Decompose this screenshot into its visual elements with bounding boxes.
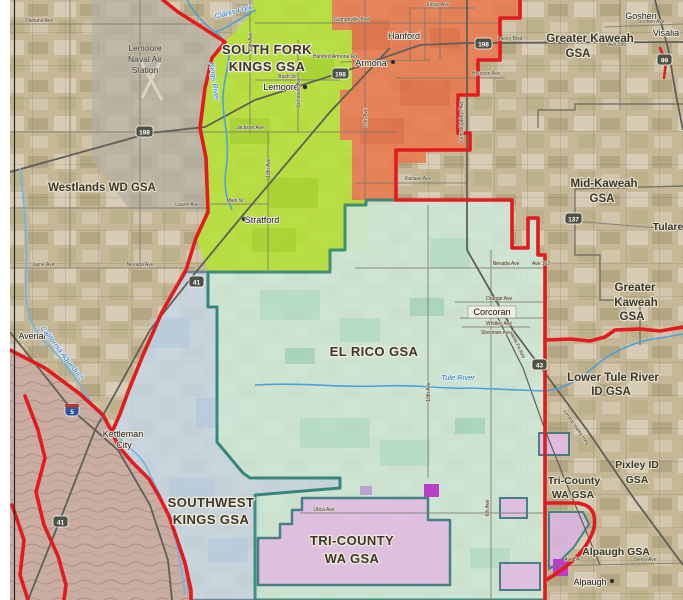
label-town-kettleman-2: City xyxy=(116,440,132,450)
label-town-alpaugh: Alpaugh xyxy=(573,577,606,587)
label-road-whitley: Whitley Ave xyxy=(486,321,512,327)
label-road-goshen-ave: Goshen Ave xyxy=(637,19,664,25)
shield-198-mid: 198 xyxy=(332,68,349,79)
label-greater-kaweah-right-2: Kaweah xyxy=(614,297,657,309)
label-naval-2: Naval Air xyxy=(128,54,162,64)
armona-dot xyxy=(391,60,395,64)
label-pixley-2: GSA xyxy=(626,474,649,486)
label-road-utica: Utica Ave xyxy=(313,507,334,513)
label-south-fork-kings-1: SOUTH FORK xyxy=(222,42,312,57)
gsa-boundary-map[interactable]: 198 198 198 41 41 5 43 137 99 Lemoore Na… xyxy=(0,0,683,600)
label-el-rico: EL RICO GSA xyxy=(330,344,419,359)
label-road-bush: Bush St xyxy=(278,74,296,80)
label-road-cvh-north: Central Valley Hwy xyxy=(459,101,465,143)
label-tule-river: Tule River xyxy=(441,373,475,382)
label-town-corcoran: Corcoran xyxy=(473,307,510,317)
label-greater-kaweah-right-1: Greater xyxy=(615,282,656,294)
label-southwest-kings-1: SOUTHWEST xyxy=(168,495,255,510)
shield-137: 137 xyxy=(565,213,582,224)
label-road-6th: 6th Ave xyxy=(485,499,491,516)
label-road-grangeville: Grangeville Blvd xyxy=(334,17,371,23)
svg-text:41: 41 xyxy=(57,520,65,527)
label-greater-kaweah-top-2: GSA xyxy=(566,48,591,60)
shield-43: 43 xyxy=(532,359,547,370)
label-lower-tule-1: Lower Tule River xyxy=(567,372,659,384)
shield-198-east: 198 xyxy=(475,38,492,49)
label-road-main-st: Main St xyxy=(227,198,245,204)
shield-41-north: 41 xyxy=(189,276,204,287)
label-tri-county-small-1: Tri-County xyxy=(548,475,601,487)
shield-99: 99 xyxy=(657,54,672,65)
shield-interstate-5: 5 xyxy=(65,404,79,416)
label-town-stratford: Stratford xyxy=(245,215,280,225)
label-south-fork-kings-2: KINGS GSA xyxy=(229,59,306,74)
label-road-19th: 19th Ave xyxy=(248,32,254,52)
label-road-sierra: Sierra Ave xyxy=(634,557,657,563)
svg-text:137: 137 xyxy=(568,217,579,224)
label-westlands: Westlands WD GSA xyxy=(48,182,156,194)
lemoore-naval-air-station-area xyxy=(92,0,220,210)
label-town-armona: Armona xyxy=(355,58,387,68)
lemoore-dot xyxy=(303,85,307,89)
svg-text:198: 198 xyxy=(139,130,150,137)
label-pixley-1: Pixley ID xyxy=(615,459,659,471)
label-road-sherman: Sherman Ave xyxy=(481,330,511,336)
label-tulare: Tulare xyxy=(653,221,683,233)
svg-text:99: 99 xyxy=(661,58,669,65)
label-greater-kaweah-right-3: GSA xyxy=(620,311,645,323)
map-canvas[interactable]: 198 198 198 41 41 5 43 137 99 Lemoore Na… xyxy=(0,0,683,600)
label-tri-county-big-1: TRI-COUNTY xyxy=(310,533,394,548)
label-road-laurel: Laurel Ave xyxy=(175,202,199,208)
label-mid-kaweah-2: GSA xyxy=(590,193,615,205)
label-naval-1: Lemoore xyxy=(128,43,162,53)
label-tri-county-big-2: WA GSA xyxy=(325,551,380,566)
label-road-18th: 18th Ave xyxy=(266,158,272,178)
label-road-ave192: Ave 192 xyxy=(532,261,550,267)
corcoran-label-box: Corcoran xyxy=(468,306,516,318)
label-road-jackson: Jackson Ave xyxy=(236,125,264,131)
label-road-hanford-armona: Hanford Armona Rd xyxy=(313,54,357,60)
svg-text:198: 198 xyxy=(478,42,489,49)
label-road-fargo: Fargo Ave xyxy=(427,2,450,8)
label-road-oakland: Oakland Ave xyxy=(25,18,53,24)
svg-text:5: 5 xyxy=(70,409,74,416)
alpaugh-dot xyxy=(610,579,614,583)
svg-text:43: 43 xyxy=(536,363,544,370)
label-road-lemoore-ave: Lemoore Ave xyxy=(296,77,302,107)
label-road-ave296: Ave 296 xyxy=(608,42,626,48)
shield-198-west: 198 xyxy=(136,126,153,137)
svg-text:41: 41 xyxy=(193,280,201,287)
label-town-hanford: Hanford xyxy=(388,31,420,41)
label-naval-3: Station xyxy=(132,65,159,75)
label-town-visalia: Visalia xyxy=(653,28,679,38)
label-southwest-kings-2: KINGS GSA xyxy=(173,512,250,527)
label-road-10th: 10th Ave xyxy=(426,382,432,402)
label-road-nevada-e: Nevada Ave xyxy=(493,261,520,267)
shield-41-south: 41 xyxy=(53,516,68,527)
label-road-nevada-w: Nevada Ave xyxy=(127,262,154,268)
label-tri-county-small-2: WA GSA xyxy=(552,489,595,501)
label-road-houston: Houston Ave xyxy=(472,71,500,77)
label-road-14th: 14th Ave xyxy=(363,108,369,128)
label-road-lacey: Lacey Blvd xyxy=(498,36,523,42)
label-town-kettleman-1: Kettleman xyxy=(103,429,144,439)
label-town-lemoore: Lemoore xyxy=(263,82,299,92)
label-road-ave54: Ave 54 xyxy=(564,557,580,563)
svg-text:198: 198 xyxy=(335,72,346,79)
label-mid-kaweah-1: Mid-Kaweah xyxy=(570,178,637,190)
label-road-orange: Orange Ave xyxy=(486,296,513,302)
label-road-jayne: Jayne Ave xyxy=(32,262,55,268)
label-road-kansas: Kansas Ave xyxy=(405,176,432,182)
label-lower-tule-2: ID GSA xyxy=(591,386,631,398)
